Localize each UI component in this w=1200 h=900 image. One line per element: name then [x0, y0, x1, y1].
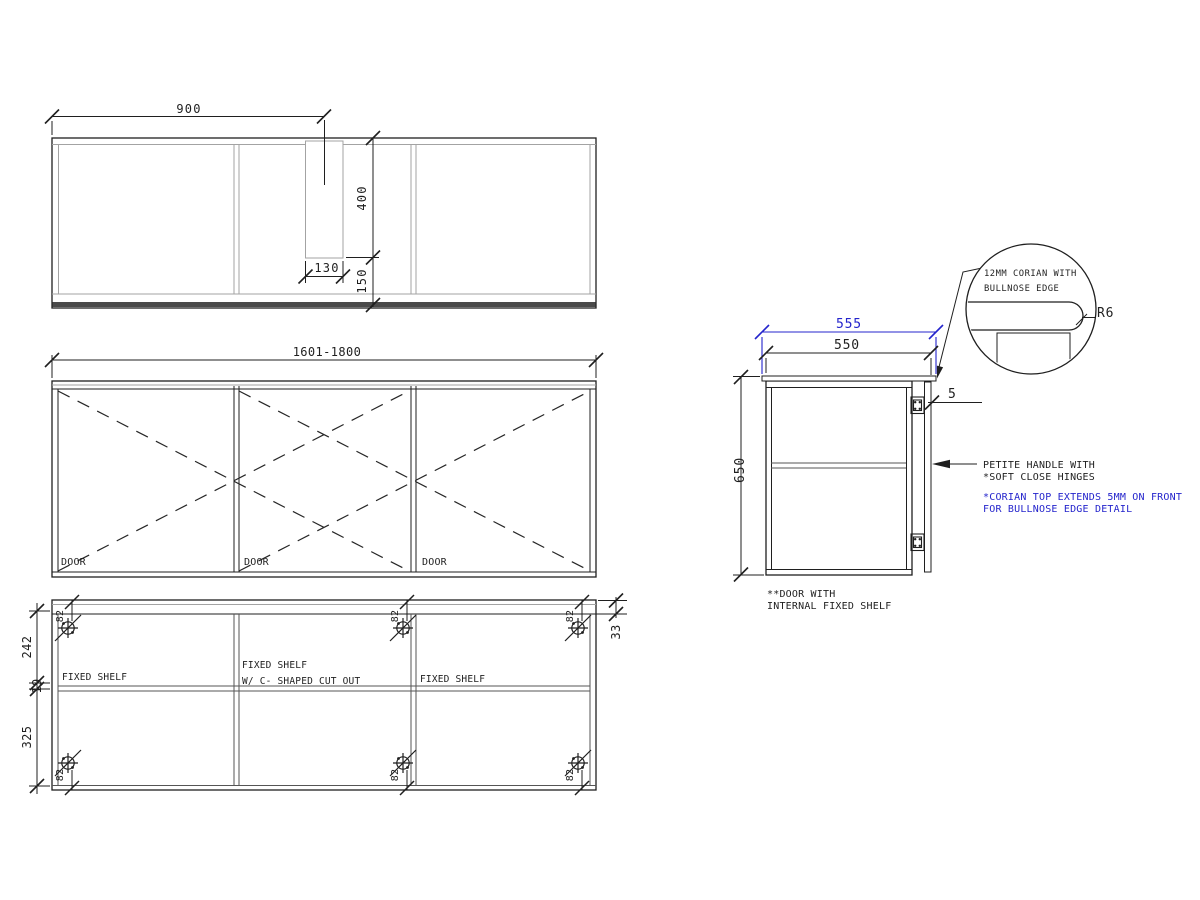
- hinge-offset-dim-label: 82: [390, 769, 401, 781]
- dim-550: 550: [759, 338, 938, 375]
- dim-1601-1800: 1601-1800: [45, 345, 603, 378]
- dim-130-label: 130: [314, 261, 339, 275]
- benchtop-front-edge: [53, 302, 596, 307]
- hinge-offset-dim-label: 82: [55, 769, 66, 781]
- hinge-offset-dim-label: 82: [55, 610, 66, 622]
- door-note-line2: INTERNAL FIXED SHELF: [767, 601, 891, 612]
- shelf-label-left: FIXED SHELF: [62, 672, 127, 683]
- dim-650: 650: [733, 370, 764, 582]
- detail-circle-outline: [966, 244, 1096, 374]
- hinge-offset-dim-label: 82: [390, 610, 401, 622]
- arrow-left-icon: [932, 460, 950, 468]
- handle-note-line2: *SOFT CLOSE HINGES: [983, 472, 1095, 483]
- hinge-offset-dim-label: 82: [565, 769, 576, 781]
- corian-note-line2: FOR BULLNOSE EDGE DETAIL: [983, 504, 1132, 515]
- bullnose-detail: 12MM CORIAN WITH BULLNOSE EDGE R6: [937, 244, 1114, 379]
- door-note-line1: **DOOR WITH: [767, 589, 835, 600]
- arrow-down-icon: [937, 366, 943, 379]
- radius-label: R6: [1097, 306, 1114, 321]
- detail-label-line2: BULLNOSE EDGE: [984, 284, 1059, 294]
- dim-width-range-label: 1601-1800: [293, 345, 362, 359]
- hinge-icon: [911, 397, 924, 414]
- door-section: [925, 382, 932, 572]
- dim-5: 5: [925, 387, 982, 410]
- dim-150-label: 150: [355, 268, 369, 293]
- dim-325-label: 325: [20, 726, 34, 749]
- dim-5-label: 5: [948, 387, 957, 402]
- detail-label-line1: 12MM CORIAN WITH: [984, 269, 1077, 279]
- shelf-label-right: FIXED SHELF: [420, 674, 485, 685]
- dim-400-label: 400: [355, 185, 369, 210]
- dim-33: 33: [596, 594, 627, 640]
- internal-elevation-view: FIXED SHELF FIXED SHELF W/ C- SHAPED CUT…: [20, 594, 627, 796]
- dim-19-label: 19: [30, 678, 44, 693]
- dim-chain-left: 242 19 325: [20, 603, 50, 794]
- handle-note: PETITE HANDLE WITH *SOFT CLOSE HINGES: [932, 460, 1095, 483]
- elevation-view: DOOR DOOR DOOR 1601-1800: [45, 345, 603, 577]
- cabinet-technical-drawing: 900 400 150 130: [0, 0, 1200, 900]
- corian-top-section: [762, 376, 936, 381]
- shelf-label-center-line2: W/ C- SHAPED CUT OUT: [242, 676, 360, 687]
- door-label-left: DOOR: [61, 557, 87, 568]
- hinge-icon: [911, 534, 924, 551]
- shelf-label-center-line1: FIXED SHELF: [242, 660, 307, 671]
- handle-note-line1: PETITE HANDLE WITH: [983, 460, 1095, 471]
- dim-242-label: 242: [20, 636, 34, 659]
- hinge-offset-dim-label: 82: [565, 610, 576, 622]
- dim-555-label: 555: [836, 317, 862, 332]
- corian-note: *CORIAN TOP EXTENDS 5MM ON FRONT FOR BUL…: [983, 492, 1182, 515]
- corian-note-line1: *CORIAN TOP EXTENDS 5MM ON FRONT: [983, 492, 1182, 503]
- dim-33-label: 33: [609, 624, 623, 639]
- door-note: **DOOR WITH INTERNAL FIXED SHELF: [767, 589, 891, 612]
- dim-650-label: 650: [733, 457, 748, 483]
- door-label-right: DOOR: [422, 557, 448, 568]
- dim-900-label: 900: [176, 102, 201, 116]
- plan-view: 900 400 150 130: [45, 102, 596, 312]
- dim-550-label: 550: [834, 338, 860, 353]
- side-section-view: 555 550 650 5 PET: [733, 317, 1182, 612]
- cad-drawing-sheet: 900 400 150 130: [0, 0, 1200, 900]
- door-label-center: DOOR: [244, 557, 270, 568]
